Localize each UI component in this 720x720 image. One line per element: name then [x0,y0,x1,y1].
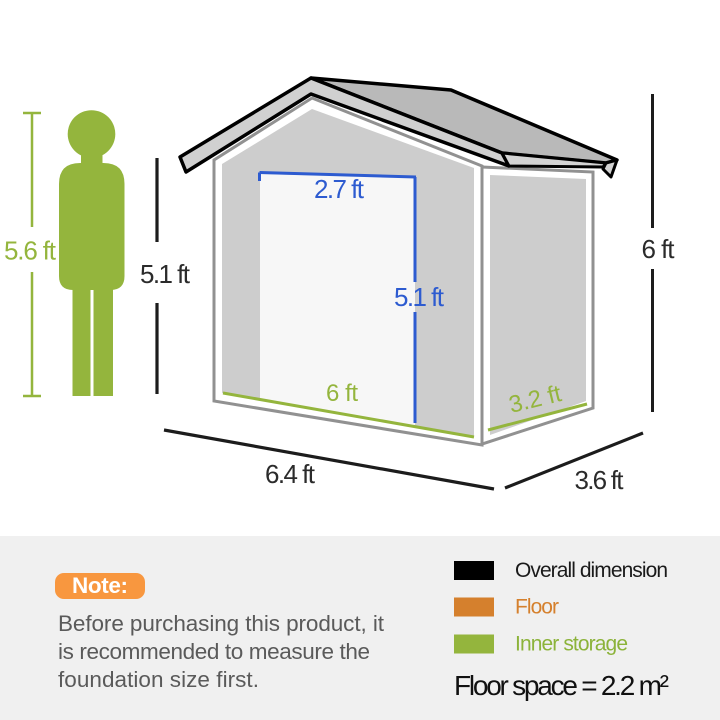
svg-text:Note:: Note: [72,573,128,598]
svg-text:6 ft: 6 ft [642,234,676,264]
svg-text:2.7 ft: 2.7 ft [314,174,365,204]
svg-text:Floor space = 2.2 m²: Floor space = 2.2 m² [454,670,669,701]
svg-text:foundation size first.: foundation size first. [58,667,259,692]
svg-text:Before purchasing this product: Before purchasing this product, it [58,611,385,636]
svg-text:Floor: Floor [515,596,559,619]
svg-text:5.6 ft: 5.6 ft [4,236,57,266]
svg-text:6 ft: 6 ft [326,380,358,407]
svg-text:Inner storage: Inner storage [515,633,628,656]
svg-text:3.6 ft: 3.6 ft [575,465,625,495]
svg-text:6.4 ft: 6.4 ft [265,459,316,489]
svg-text:Overall dimension: Overall dimension [515,559,668,582]
svg-text:5.1 ft: 5.1 ft [140,259,191,289]
svg-text:5.1 ft: 5.1 ft [394,282,445,312]
svg-text:is recommended to measure the: is recommended to measure the [58,639,370,664]
